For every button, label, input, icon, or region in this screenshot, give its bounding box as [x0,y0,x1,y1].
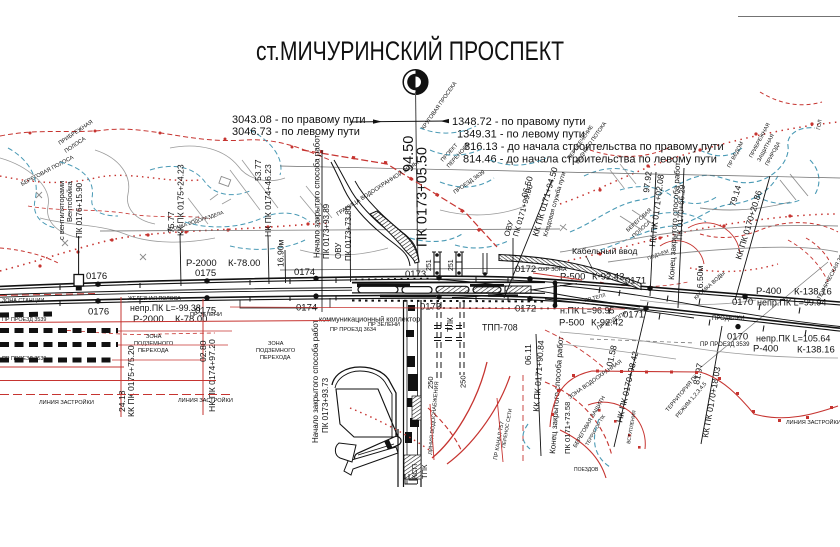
svg-text:250: 250 [459,375,468,388]
svg-text:251: 251 [426,259,433,271]
svg-text:251: 251 [448,259,455,271]
svg-text:К-92.42: К-92.42 [592,272,624,283]
svg-text:Р-400: Р-400 [756,286,781,297]
svg-text:КК ПК 0175+75.20: КК ПК 0175+75.20 [126,345,136,417]
svg-text:ПЕРЕХОДА: ПЕРЕХОДА [260,355,291,361]
svg-text:0176: 0176 [88,307,109,318]
svg-text:НК ПК 0174+46.23: НК ПК 0174+46.23 [263,164,273,237]
svg-text:53.77: 53.77 [253,159,263,181]
svg-text:16.90м: 16.90м [276,239,286,267]
svg-text:ПР ЗЕЛЕНИ: ПР ЗЕЛЕНИ [190,312,222,318]
svg-text:Р-2000: Р-2000 [186,258,217,269]
svg-text:ПЕРЕХОДА: ПЕРЕХОДА [138,348,169,354]
svg-text:непр.ПК L=99.94: непр.ПК L=99.94 [757,298,826,308]
svg-text:ЛИНИЯ ЗАСТРОЙКИ: ЛИНИЯ ЗАСТРОЙКИ [786,418,840,426]
svg-text:ПК 0176+15.90: ПК 0176+15.90 [75,182,84,238]
svg-text:ЛИНИЯ ЗАСТРОЙКИ: ЛИНИЯ ЗАСТРОЙКИ [178,396,233,404]
svg-text:К-138.16: К-138.16 [797,345,835,356]
svg-text:ПК 0173+93.73: ПК 0173+93.73 [321,377,330,433]
svg-text:ТЛК: ТЛК [446,317,455,332]
svg-text:ЗОНА: ЗОНА [268,341,284,347]
svg-text:КК ПК 0175+24.23: КК ПК 0175+24.23 [176,164,186,236]
svg-text:ТПК: ТПК [420,464,429,479]
svg-text:3043.08 - по правому пути: 3043.08 - по правому пути [232,114,366,126]
svg-text:0170: 0170 [732,297,753,308]
svg-text:Начало закрытого способа работ: Начало закрытого способа работ [311,320,320,443]
svg-text:3046.73 - по левому пути: 3046.73 - по левому пути [232,126,360,138]
svg-text:0174: 0174 [296,303,317,314]
svg-text:н.ПК L=96.95: н.ПК L=96.95 [560,306,614,316]
svg-text:ПОДЗЕМНОГО: ПОДЗЕМНОГО [256,348,296,354]
svg-text:Вентсбойка: Вентсбойка [65,180,74,222]
svg-text:0175: 0175 [195,268,216,279]
svg-text:816.13 - до начала строительст: 816.13 - до начала строительства по прав… [464,141,724,153]
svg-text:ОВУ: ОВУ [334,242,343,259]
svg-text:75.77: 75.77 [166,211,176,233]
svg-text:ПР ЗЕЛЕНИ: ПР ЗЕЛЕНИ [368,322,400,328]
svg-text:ПОДЗЕМНОГО: ПОДЗЕМНОГО [134,341,174,347]
svg-text:КСП: КСП [410,464,419,479]
svg-text:ПК 0173+93.89: ПК 0173+93.89 [322,203,331,259]
svg-text:1348.72 - по правому пути: 1348.72 - по правому пути [452,116,586,128]
svg-text:0173: 0173 [405,269,426,280]
svg-text:06.11: 06.11 [523,344,533,365]
svg-text:0172: 0172 [515,304,536,315]
svg-text:0174: 0174 [294,267,315,278]
svg-text:Р-500: Р-500 [559,318,584,329]
svg-text:К-78.00: К-78.00 [228,258,260,269]
svg-text:ТПП-708: ТПП-708 [482,323,518,333]
svg-text:Р-2000: Р-2000 [133,314,164,325]
svg-text:ОХР ЗОНА: ОХР ЗОНА [538,267,567,273]
svg-text:ЛИНИЯ ЗАСТРОЙКИ: ЛИНИЯ ЗАСТРОЙКИ [39,398,94,406]
svg-text:1349.31 - по левому пути: 1349.31 - по левому пути [457,129,585,141]
svg-text:0173: 0173 [420,302,441,313]
svg-text:Р-400: Р-400 [753,344,778,355]
svg-text:0170: 0170 [727,332,748,343]
svg-text:16.50м: 16.50м [695,265,705,293]
svg-text:0171: 0171 [625,276,646,287]
svg-text:ПК 0173+73.80: ПК 0173+73.80 [344,205,353,261]
svg-text:ЗОНА: ЗОНА [146,334,162,340]
svg-text:непр.ПК L=105.64: непр.ПК L=105.64 [756,334,830,344]
svg-text:Начало закрытого способа работ: Начало закрытого способа работ [313,135,322,258]
svg-text:ПОЕЗДОВ: ПОЕЗДОВ [574,467,599,473]
svg-text:0176: 0176 [86,271,107,282]
svg-text:Кабельный ввод: Кабельный ввод [572,246,637,256]
svg-text:ПК 0171+73.58: ПК 0171+73.58 [563,402,572,454]
svg-text:ст.МИЧУРИНСКИЙ ПРОСПЕКТ: ст.МИЧУРИНСКИЙ ПРОСПЕКТ [256,36,564,66]
